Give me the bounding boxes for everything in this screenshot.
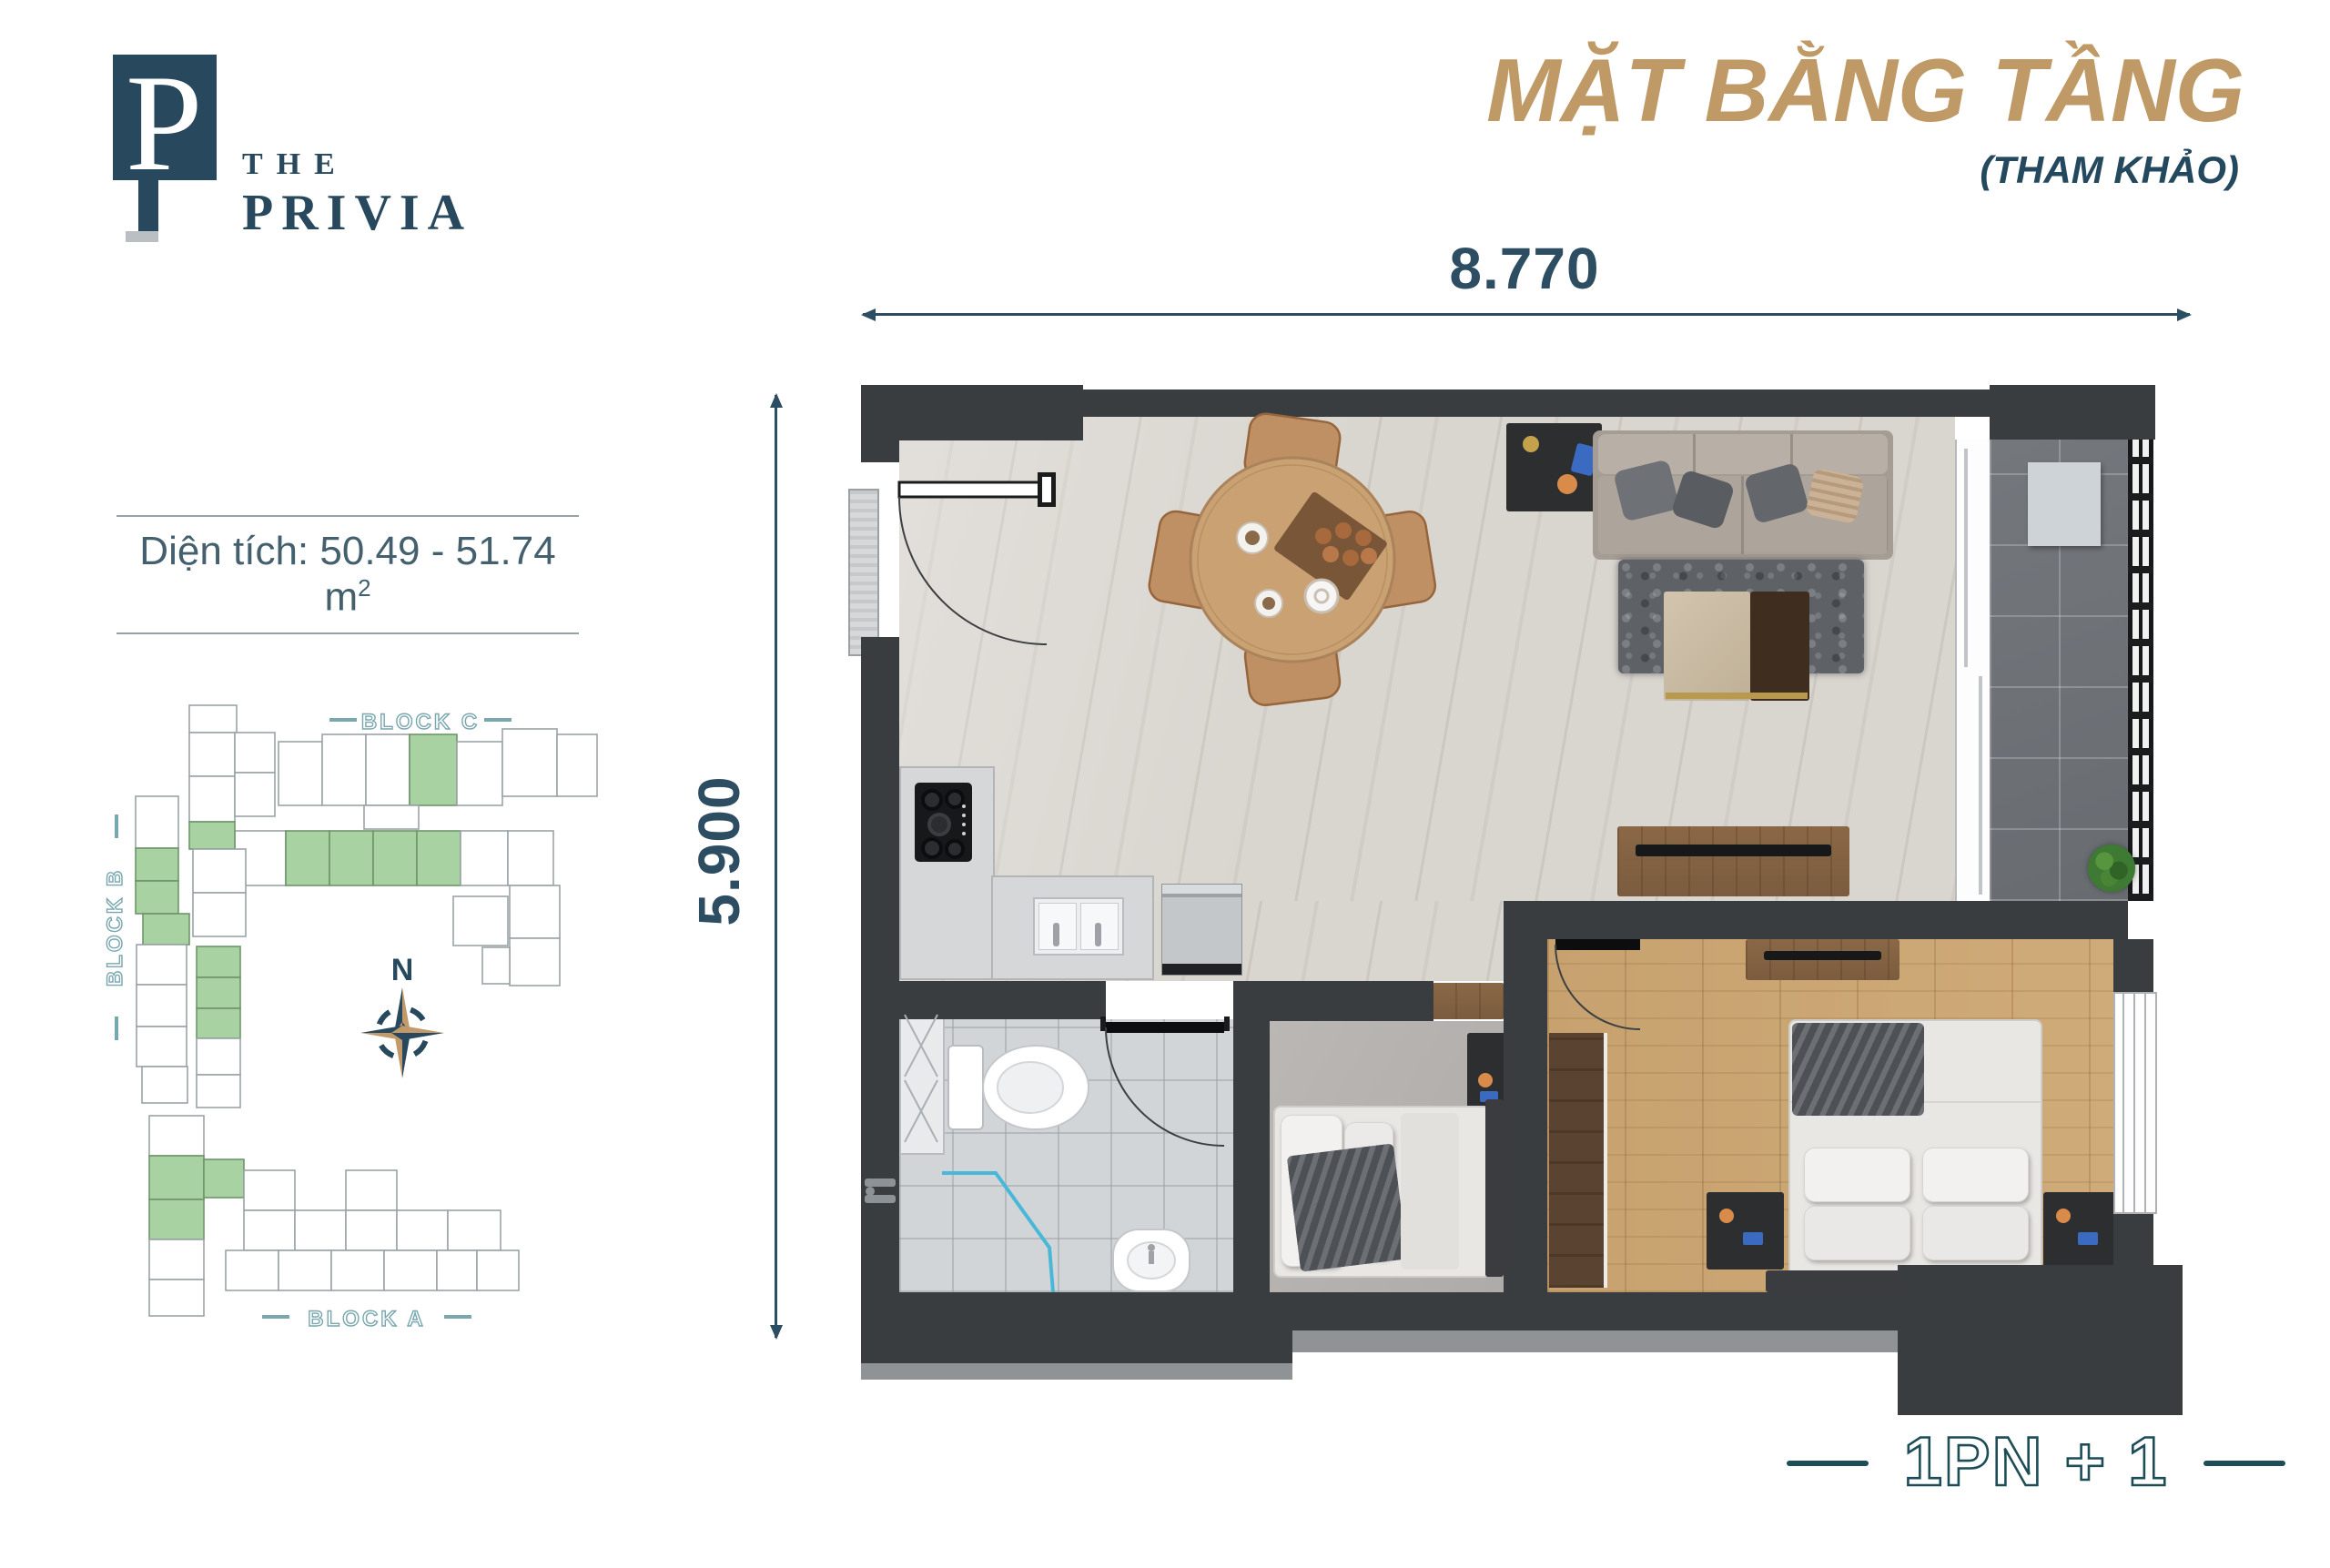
floor-plan [861,385,2192,1422]
width-dimension-label: 8.770 [1361,235,1688,302]
width-dimension-arrow-icon [863,313,2190,316]
area-info: Diện tích: 50.49 - 51.74 m2 [116,515,579,634]
brand-privia: PRIVIA [242,184,472,242]
brand-logo: P THE PRIVIA [107,53,472,248]
svg-text:N: N [391,953,414,987]
plan-overlay [861,385,2192,1422]
block-b-outline [136,705,275,1108]
dash-icon [2203,1461,2285,1466]
block-b-label: BLOCK B [103,868,127,986]
block-a-label: BLOCK A [308,1307,425,1331]
brand-name: THE PRIVIA [242,147,472,248]
page-subtitle: (THAM KHẢO) [1486,148,2244,192]
shower-tray-marks [905,1015,937,1142]
privia-monogram-icon: P [107,53,228,248]
title-block: MẶT BẰNG TẦNG (THAM KHẢO) [1486,44,2244,192]
bathroom-door [1100,1017,1230,1146]
site-map: BLOCK C BLOCK B [91,678,637,1370]
svg-text:1PN + 1: 1PN + 1 [1904,1423,2169,1501]
unit-type: 1PN + 1 [1769,1418,2303,1509]
height-dimension-label: 5.900 [685,751,753,951]
page-title: MẶT BẰNG TẦNG [1486,44,2244,137]
shower-valve-icon [865,1179,896,1203]
wash-basin [1113,1229,1190,1291]
dash-icon [1787,1461,1869,1466]
block-a-outline [149,1116,519,1316]
toilet [948,1046,1089,1129]
entry-door [899,472,1056,644]
compass-icon: N [360,953,444,1078]
dining-set [1147,411,1437,706]
height-dimension-arrow-icon [775,395,777,1338]
svg-text:P: P [126,53,203,199]
unit-type-outline-text: 1PN + 1 [1899,1418,2173,1509]
block-c-label: BLOCK C [361,710,480,734]
block-c-outline [235,729,597,986]
shower-glass-line [942,1173,1053,1292]
bedroom-door [1555,939,1640,1029]
brand-the: THE [242,147,472,182]
